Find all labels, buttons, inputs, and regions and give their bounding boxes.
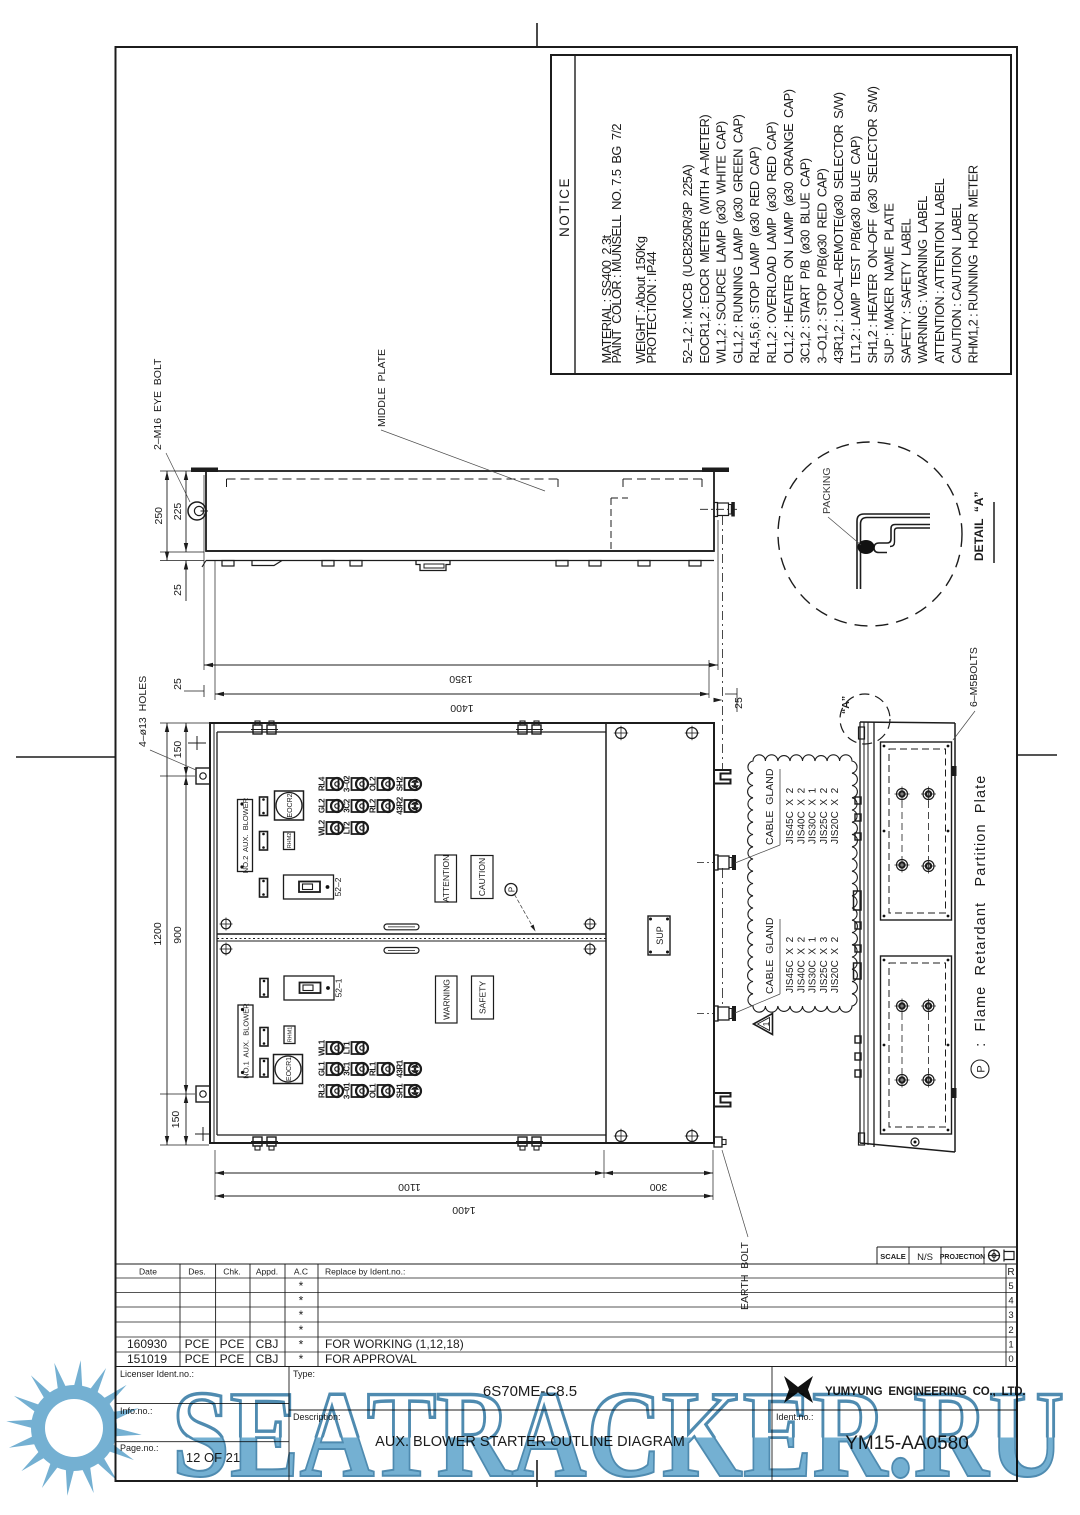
svg-text:NO.1 AUX. BLOWER: NO.1 AUX. BLOWER [242, 1003, 251, 1079]
svg-text:FOR WORKING (1,12,18): FOR WORKING (1,12,18) [325, 1337, 464, 1351]
svg-text:SAFETY: SAFETY [478, 981, 488, 1014]
svg-text:RHM1,2 : RUNNING HOUR METER: RHM1,2 : RUNNING HOUR METER [966, 165, 981, 363]
svg-text:JIS30C X 1: JIS30C X 1 [808, 936, 819, 993]
svg-text:RHM1: RHM1 [288, 1027, 294, 1043]
svg-text:N/S: N/S [917, 1252, 933, 1263]
svg-text:GL1,2 : RUNNING LAMP (ø30 G: GL1,2 : RUNNING LAMP (ø30 GREEN CAP) [730, 115, 745, 364]
svg-text:Chk.: Chk. [223, 1267, 240, 1277]
svg-text:WL2: WL2 [318, 819, 327, 836]
svg-text:1400: 1400 [450, 702, 474, 714]
svg-text:CBJ: CBJ [256, 1337, 279, 1351]
svg-text:Date: Date [139, 1267, 157, 1277]
svg-text:1400: 1400 [452, 1204, 476, 1216]
svg-text:OL2: OL2 [369, 776, 378, 791]
svg-text:CBJ: CBJ [256, 1352, 279, 1366]
svg-text:3–02: 3–02 [343, 775, 352, 792]
svg-text:RL2: RL2 [369, 798, 378, 813]
svg-text:151019: 151019 [127, 1352, 167, 1366]
svg-text:EOCR1: EOCR1 [286, 1057, 293, 1081]
svg-text:150: 150 [170, 1111, 182, 1129]
svg-text:3C2: 3C2 [343, 798, 352, 812]
svg-text:EOCR1,2 : EOCR METER (WITH: EOCR1,2 : EOCR METER (WITH A–METER) [697, 115, 712, 364]
svg-text:PCE: PCE [220, 1337, 245, 1351]
svg-text:43R1: 43R1 [396, 1059, 405, 1077]
svg-text:WARNING : WARNING LABEL: WARNING : WARNING LABEL [915, 196, 930, 364]
svg-text:1: 1 [762, 1021, 771, 1026]
svg-text:PCE: PCE [220, 1352, 245, 1366]
svg-text:*: * [299, 1279, 304, 1293]
svg-text:4–ø13 HOLES: 4–ø13 HOLES [137, 676, 149, 747]
svg-text:52–1,2 : MCCB (UCB250R/3P 22: 52–1,2 : MCCB (UCB250R/3P 225A) [680, 165, 695, 364]
svg-text:2: 2 [1008, 1325, 1013, 1336]
svg-text:JIS25C X 2: JIS25C X 2 [819, 787, 830, 844]
svg-text:3–O1,2 : STOP P/B(ø30 RED C: 3–O1,2 : STOP P/B(ø30 RED CAP) [814, 168, 829, 363]
svg-text:EARTH BOLT: EARTH BOLT [739, 1242, 751, 1310]
svg-text:SH1: SH1 [396, 1083, 405, 1098]
svg-text:RL3: RL3 [318, 1083, 327, 1098]
svg-text:25: 25 [172, 678, 184, 690]
svg-text:*: * [299, 1308, 304, 1322]
svg-text:PCE: PCE [185, 1352, 210, 1366]
svg-text:5: 5 [1008, 1281, 1013, 1292]
svg-text:RL1: RL1 [369, 1061, 378, 1076]
svg-text:CAUTION : CAUTION LABEL: CAUTION : CAUTION LABEL [949, 203, 964, 363]
svg-text:Appd.: Appd. [256, 1267, 278, 1277]
svg-text:ATTENTION: ATTENTION [441, 855, 451, 903]
svg-text:JIS30C X 1: JIS30C X 1 [808, 787, 819, 844]
svg-text:GL1: GL1 [318, 1061, 327, 1076]
svg-text:LT2: LT2 [343, 821, 352, 834]
svg-text:150: 150 [172, 741, 184, 759]
svg-text:SH1,2 : HEATER ON–OFF (ø30: SH1,2 : HEATER ON–OFF (ø30 SELECTOR S/W) [865, 86, 880, 363]
svg-text:P: P [976, 1065, 988, 1072]
svg-text:52–2: 52–2 [333, 877, 343, 896]
svg-text:NO.2 AUX. BLOWER: NO.2 AUX. BLOWER [241, 797, 250, 873]
svg-text:52–1: 52–1 [334, 978, 344, 997]
svg-text:GL2: GL2 [318, 798, 327, 813]
svg-text:NOTICE: NOTICE [557, 177, 572, 237]
svg-text:CABLE GLAND: CABLE GLAND [764, 768, 776, 845]
svg-text:P: P [508, 887, 517, 892]
svg-text:PCE: PCE [185, 1337, 210, 1351]
svg-text:25: 25 [733, 697, 745, 709]
svg-text:: Flame Retardant Partitio: : Flame Retardant Partition Plate [973, 775, 989, 1052]
svg-text:1350: 1350 [449, 673, 473, 685]
svg-text:MIDDLE PLATE: MIDDLE PLATE [376, 349, 388, 427]
svg-text:43R1,2 : LOCAL–REMOTE(ø30 SEL: 43R1,2 : LOCAL–REMOTE(ø30 SELECTOR S/W) [831, 92, 846, 363]
svg-text:SUP: SUP [655, 926, 665, 945]
svg-text:*: * [299, 1294, 304, 1308]
svg-text:WARNING: WARNING [442, 979, 452, 1020]
svg-text:900: 900 [172, 926, 184, 944]
svg-text:WL1: WL1 [318, 1039, 327, 1056]
svg-text:*: * [299, 1352, 304, 1366]
svg-text:CABLE GLAND: CABLE GLAND [764, 917, 776, 994]
svg-text:PAINT COLOR : MUNSELL NO. 7.: PAINT COLOR : MUNSELL NO. 7.5 BG 7/2 [609, 124, 624, 364]
svg-text:PROTECTION : IP44: PROTECTION : IP44 [644, 252, 659, 364]
svg-text:A.C: A.C [294, 1267, 308, 1277]
svg-text:Page.no.:: Page.no.: [120, 1443, 159, 1453]
svg-text:0: 0 [1008, 1354, 1013, 1365]
svg-text:300: 300 [650, 1181, 668, 1193]
svg-text:160930: 160930 [127, 1337, 167, 1351]
svg-text:2–M16 EYE BOLT: 2–M16 EYE BOLT [152, 358, 164, 450]
svg-text:Replace by Ident.no.:: Replace by Ident.no.: [325, 1267, 405, 1277]
svg-text:250: 250 [153, 507, 165, 525]
svg-text:25: 25 [172, 584, 184, 596]
svg-text:FOR APPROVAL: FOR APPROVAL [325, 1352, 417, 1366]
svg-text:JIS40C X 2: JIS40C X 2 [796, 936, 807, 993]
svg-text:SH2: SH2 [396, 776, 405, 791]
svg-text:JIS25C X 3: JIS25C X 3 [819, 936, 830, 993]
svg-text:1200: 1200 [152, 922, 164, 946]
svg-text:“A”: “A” [840, 696, 852, 714]
svg-text:R: R [1007, 1267, 1014, 1278]
svg-text:43R2: 43R2 [396, 796, 405, 814]
svg-text:JIS45C X 2: JIS45C X 2 [785, 787, 796, 844]
svg-text:6–M5BOLTS: 6–M5BOLTS [968, 647, 980, 707]
svg-text:4: 4 [1008, 1296, 1013, 1307]
svg-text:PACKING: PACKING [821, 468, 833, 514]
svg-text:RL4: RL4 [318, 776, 327, 791]
svg-text:3–01: 3–01 [343, 1082, 352, 1099]
svg-text:LT1: LT1 [343, 1041, 352, 1054]
svg-text:CAUTION: CAUTION [477, 858, 487, 896]
svg-text:RHM2: RHM2 [287, 833, 293, 849]
svg-text:DETAIL “A”: DETAIL “A” [972, 491, 986, 561]
svg-text:JIS40C X 2: JIS40C X 2 [796, 787, 807, 844]
svg-text:JIS45C X 2: JIS45C X 2 [785, 936, 796, 993]
svg-text:SCALE: SCALE [880, 1252, 905, 1261]
svg-text:RL4,5,6 : STOP LAMP (ø30 RE: RL4,5,6 : STOP LAMP (ø30 RED CAP) [747, 147, 762, 364]
svg-text:OL1,2 : HEATER ON LAMP (ø30: OL1,2 : HEATER ON LAMP (ø30 ORANGE CAP) [781, 89, 796, 363]
svg-text:Des.: Des. [188, 1267, 205, 1277]
svg-text:3: 3 [1008, 1310, 1013, 1321]
svg-text:*: * [299, 1337, 304, 1351]
svg-text:PROJECTION: PROJECTION [940, 1254, 986, 1261]
svg-text:RL1,2 : OVERLOAD LAMP (ø30: RL1,2 : OVERLOAD LAMP (ø30 RED CAP) [764, 122, 779, 364]
svg-text:ATTENTION : ATTENTION LABEL: ATTENTION : ATTENTION LABEL [932, 178, 947, 363]
svg-text:1100: 1100 [398, 1181, 421, 1193]
svg-text:JIS20C X 2: JIS20C X 2 [830, 787, 841, 844]
svg-text:1: 1 [1008, 1339, 1013, 1350]
svg-text:3C1,2 : START P/B (ø30 BLUE: 3C1,2 : START P/B (ø30 BLUE CAP) [798, 158, 813, 363]
svg-text:3C1: 3C1 [343, 1061, 352, 1075]
svg-text:OL1: OL1 [369, 1083, 378, 1098]
svg-text:LT1,2 : LAMP TEST P/B(ø30 B: LT1,2 : LAMP TEST P/B(ø30 BLUE CAP) [848, 136, 863, 364]
svg-text:*: * [299, 1323, 304, 1337]
svg-text:SAFETY : SAFETY LABEL: SAFETY : SAFETY LABEL [898, 218, 913, 363]
svg-text:225: 225 [172, 503, 184, 521]
svg-text:SUP : MAKER NAME PLATE: SUP : MAKER NAME PLATE [882, 204, 897, 364]
svg-text:WL1,2 : SOURCE LAMP (ø30 WH: WL1,2 : SOURCE LAMP (ø30 WHITE CAP) [714, 121, 729, 363]
svg-text:EOCR2: EOCR2 [287, 793, 294, 817]
svg-text:JIS20C X 2: JIS20C X 2 [830, 936, 841, 993]
